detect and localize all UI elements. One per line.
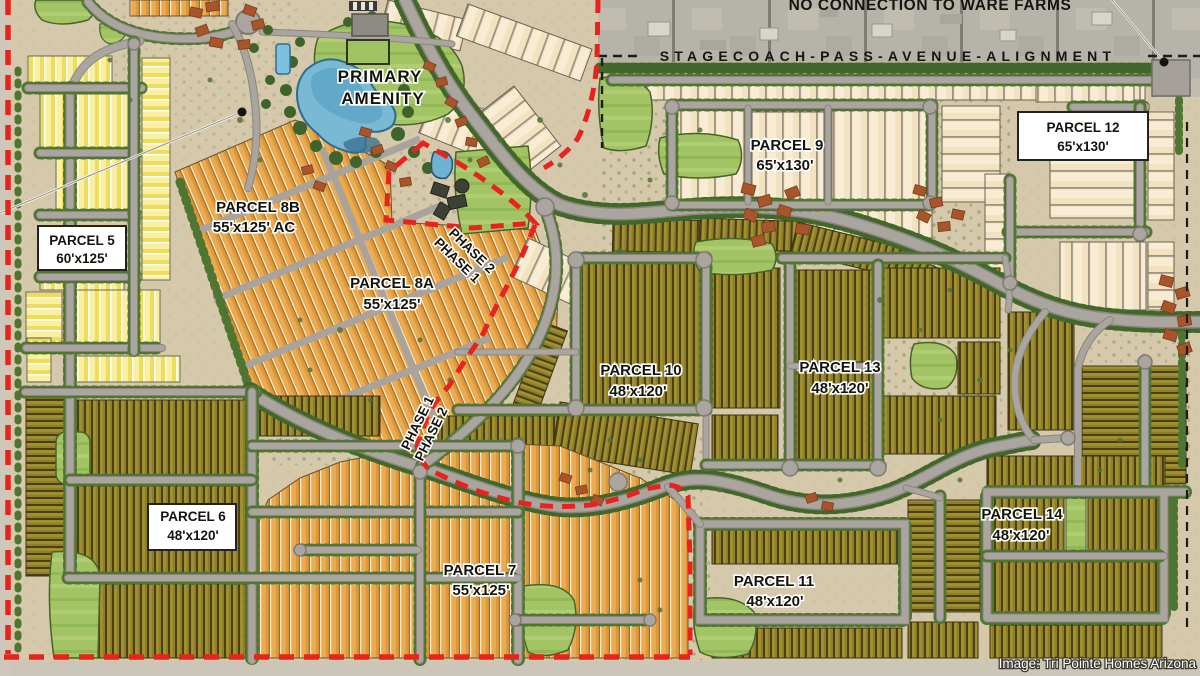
- svg-text:48'x120': 48'x120': [167, 528, 218, 543]
- svg-text:65'x130': 65'x130': [1057, 139, 1108, 154]
- svg-text:PARCEL 10: PARCEL 10: [600, 362, 681, 379]
- svg-text:60'x125': 60'x125': [56, 251, 107, 266]
- svg-text:PARCEL 11: PARCEL 11: [734, 573, 814, 590]
- svg-text:48'x120': 48'x120': [811, 380, 868, 397]
- svg-text:55'x125' AC: 55'x125' AC: [213, 219, 296, 236]
- svg-text:PARCEL 13: PARCEL 13: [799, 359, 880, 376]
- svg-text:NO CONNECTION TO WARE FARMS: NO CONNECTION TO WARE FARMS: [789, 0, 1072, 14]
- svg-text:48'x120': 48'x120': [609, 383, 666, 400]
- svg-text:PARCEL 6: PARCEL 6: [160, 509, 226, 524]
- svg-text:Image: Tri Pointe Homes Arizon: Image: Tri Pointe Homes Arizona: [999, 656, 1197, 671]
- svg-text:PRIMARY: PRIMARY: [338, 67, 423, 86]
- svg-text:55'x125': 55'x125': [452, 582, 509, 599]
- svg-text:PARCEL 8A: PARCEL 8A: [350, 275, 434, 292]
- svg-text:55'x125': 55'x125': [363, 296, 420, 313]
- svg-text:PARCEL 9: PARCEL 9: [751, 137, 824, 154]
- svg-text:48'x120': 48'x120': [992, 527, 1049, 544]
- svg-text:PARCEL 8B: PARCEL 8B: [216, 199, 300, 216]
- svg-text:PARCEL 12: PARCEL 12: [1046, 120, 1119, 135]
- svg-text:STAGECOACH-PASS-AVENUE-ALIGNME: STAGECOACH-PASS-AVENUE-ALIGNMENT: [660, 48, 1117, 64]
- svg-text:PARCEL 7: PARCEL 7: [444, 562, 517, 579]
- svg-text:AMENITY: AMENITY: [341, 89, 425, 108]
- svg-text:48'x120': 48'x120': [746, 593, 803, 610]
- svg-text:65'x130': 65'x130': [756, 157, 813, 174]
- svg-text:PARCEL 14: PARCEL 14: [981, 506, 1063, 523]
- svg-text:PARCEL 5: PARCEL 5: [49, 233, 115, 248]
